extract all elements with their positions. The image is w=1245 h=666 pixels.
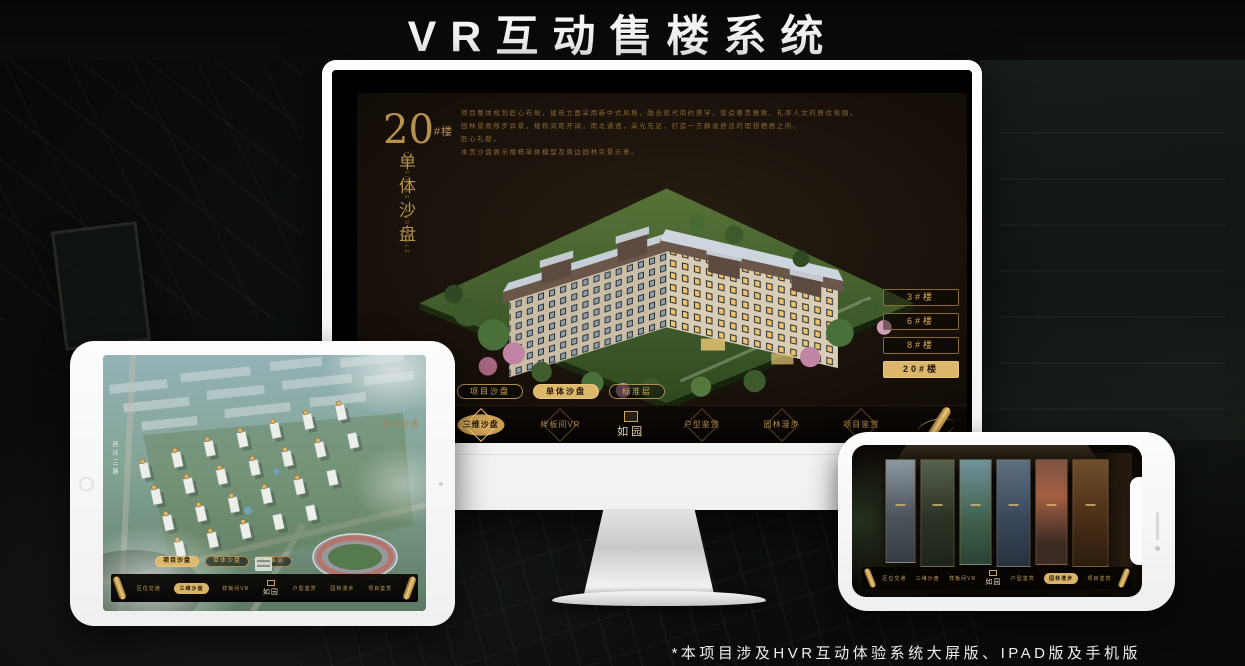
- building-3d-render: [382, 157, 942, 407]
- map-legend: [255, 557, 272, 571]
- nav-item-floorplans[interactable]: 户型鉴赏: [293, 585, 317, 592]
- phone-screen: 区位交通 三维沙盘 样板间VR 如园 户型鉴赏 园林漫步 项目鉴赏: [852, 445, 1142, 597]
- tab-standard-floor[interactable]: 标准层: [609, 384, 665, 399]
- floor-button-3[interactable]: 3#楼: [883, 289, 959, 306]
- description-line: 项目整体规划匠心布局，建筑立面采用新中式风格，融合现代简约美学，营造尊贵雅致、礼…: [461, 107, 911, 120]
- phone-nav-bar: 区位交通 三维沙盘 样板间VR 如园 户型鉴赏 园林漫步 项目鉴赏: [862, 567, 1132, 589]
- brand-logo: 如园: [985, 570, 1001, 587]
- logo-text: 如园: [608, 423, 654, 439]
- road-label: 西环三路: [110, 441, 119, 477]
- nav-item-garden-walk[interactable]: 园林漫步: [330, 585, 354, 592]
- brand-logo: 如园: [263, 580, 279, 597]
- nav-item-location[interactable]: 区位交通: [882, 575, 906, 582]
- logo-seal-icon: [989, 570, 997, 576]
- background-plaque: [51, 221, 151, 351]
- nav-item-3d-sandbox[interactable]: 三维沙盘: [916, 575, 940, 582]
- floor-button-group: 3#楼 6#楼 8#楼 20#楼: [883, 289, 959, 378]
- brand-logo: 如园: [608, 411, 654, 439]
- tablet-nav-bar: 区位交通 三维沙盘 样板间VR 如园 户型鉴赏 园林漫步 项目鉴赏: [111, 574, 418, 602]
- tablet-home-button[interactable]: [79, 476, 94, 491]
- sandbox-sub-tabs: 项目沙盘 单体沙盘 标准层: [457, 384, 665, 399]
- tablet-device: 西环三路 项目沙盘 单体沙盘 标准层 区位交通 三维沙盘 样板间VR 如园 户型…: [70, 341, 455, 626]
- phone-notch: [1130, 477, 1142, 565]
- tab-single-sandbox[interactable]: 单体沙盘: [533, 384, 599, 399]
- tab-project-sandbox[interactable]: 项目沙盘: [155, 556, 199, 567]
- nav-item-3d-sandbox[interactable]: 三维沙盘: [449, 419, 513, 430]
- gallery-panel[interactable]: [1073, 459, 1109, 567]
- background-map-lines-left: [0, 60, 300, 320]
- gallery-panel[interactable]: [997, 459, 1031, 567]
- promo-poster: VR互动售楼系统 20#楼 单体沙盘 THE SINGLE SAND TABLE…: [0, 0, 1245, 666]
- nav-item-3d-sandbox[interactable]: 三维沙盘: [174, 583, 208, 594]
- aerial-masterplan-render: [103, 355, 426, 611]
- scroll-deco-right[interactable]: [1117, 568, 1130, 589]
- phone-device: 区位交通 三维沙盘 样板间VR 如园 户型鉴赏 园林漫步 项目鉴赏: [838, 432, 1175, 611]
- description-line: 匠心礼献。: [461, 133, 911, 146]
- nav-item-showroom-vr[interactable]: 样板间VR: [528, 419, 592, 430]
- footnote-text: *本项目涉及HVR互动体验系统大屏版、IPAD版及手机版: [672, 642, 1141, 663]
- monitor-stand-base: [552, 591, 766, 606]
- nav-item-floorplans[interactable]: 户型鉴赏: [1011, 575, 1035, 582]
- scroll-deco-right[interactable]: [402, 576, 417, 601]
- tab-single-sandbox[interactable]: 单体沙盘: [205, 556, 249, 567]
- nav-item-showroom-vr[interactable]: 样板间VR: [949, 575, 976, 582]
- gallery-panel[interactable]: [960, 459, 992, 565]
- tablet-screen: 西环三路 项目沙盘 单体沙盘 标准层 区位交通 三维沙盘 样板间VR 如园 户型…: [103, 355, 426, 611]
- gallery-panel[interactable]: [1036, 459, 1068, 565]
- scroll-deco-left[interactable]: [112, 576, 127, 601]
- nav-item-garden-walk[interactable]: 园林漫步: [1044, 573, 1078, 584]
- project-description: 项目整体规划匠心布局，建筑立面采用新中式风格，融合现代简约美学，营造尊贵雅致、礼…: [461, 107, 911, 159]
- floor-button-8[interactable]: 8#楼: [883, 337, 959, 354]
- building-number: 20: [383, 107, 434, 153]
- floor-button-20[interactable]: 20#楼: [883, 361, 959, 378]
- description-line: 园林景观移步异景，楼栋间距开阔，南北通透，采光充足，打造一方静谧舒适的理想栖居之…: [461, 120, 911, 133]
- tab-project-sandbox[interactable]: 项目沙盘: [457, 384, 523, 399]
- scroll-deco-left[interactable]: [863, 568, 876, 589]
- nav-item-floorplans[interactable]: 户型鉴赏: [670, 419, 734, 430]
- nav-item-garden-walk[interactable]: 园林漫步: [750, 419, 814, 430]
- gallery-panel[interactable]: [921, 459, 955, 567]
- nav-item-project-gallery[interactable]: 项目鉴赏: [368, 585, 392, 592]
- building-number-suffix: #楼: [434, 126, 453, 138]
- nav-item-showroom-vr[interactable]: 样板间VR: [222, 585, 249, 592]
- floor-button-6[interactable]: 6#楼: [883, 313, 959, 330]
- monitor-stand: [584, 509, 714, 594]
- nav-item-project-gallery[interactable]: 项目鉴赏: [829, 419, 893, 430]
- logo-seal-icon: [267, 580, 275, 586]
- logo-seal-icon: [624, 411, 638, 422]
- nav-item-location[interactable]: 区位交通: [137, 585, 161, 592]
- background-photo-collage: [980, 60, 1245, 440]
- gallery-panels: [886, 459, 1109, 567]
- phone-camera-icon: [1155, 546, 1160, 551]
- nav-item-project-gallery[interactable]: 项目鉴赏: [1088, 575, 1112, 582]
- gallery-panel[interactable]: [886, 459, 916, 563]
- phone-speaker-icon: [1156, 512, 1159, 540]
- tablet-camera-icon: [439, 482, 443, 486]
- page-title: VR互动售楼系统: [0, 2, 1245, 64]
